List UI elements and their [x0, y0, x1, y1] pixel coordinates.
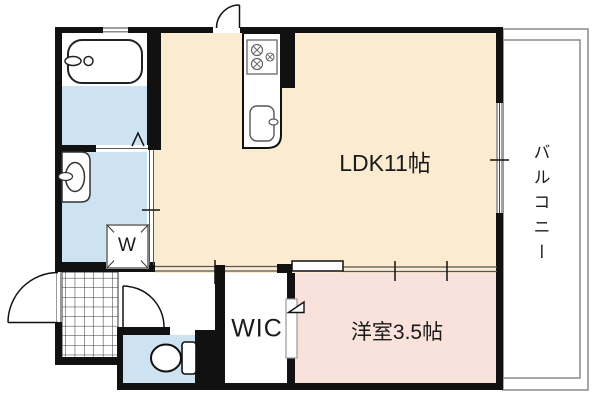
ldk-label: LDK11帖: [339, 144, 431, 178]
balcony-label: バルコニー: [528, 143, 553, 268]
sink-fixture: [250, 106, 278, 141]
stove-fixture: [247, 40, 277, 74]
bath-window: [103, 26, 128, 34]
entry-door-opening: [57, 272, 61, 322]
entry-door: [8, 273, 58, 323]
floorplan-drawing: [0, 0, 616, 419]
sliding-door-leaf: [292, 261, 343, 271]
washer-pan-label: W: [118, 235, 136, 257]
top-door: [217, 5, 240, 28]
kitchen-counter: [243, 33, 281, 148]
bathtub-fixture: [65, 40, 142, 83]
entrance-tile: [62, 272, 118, 358]
floorplan: LDK11帖 洋室3.5帖 WIC W バルコニー: [0, 0, 616, 419]
western-room-label: 洋室3.5帖: [351, 316, 443, 346]
toilet-door: [123, 286, 164, 327]
bathroom-floor: [62, 86, 147, 147]
wic-label: WIC: [231, 315, 283, 344]
ldk-floor: [154, 33, 496, 273]
washbasin-fixture: [59, 152, 91, 202]
toilet-fixture: [151, 342, 196, 374]
